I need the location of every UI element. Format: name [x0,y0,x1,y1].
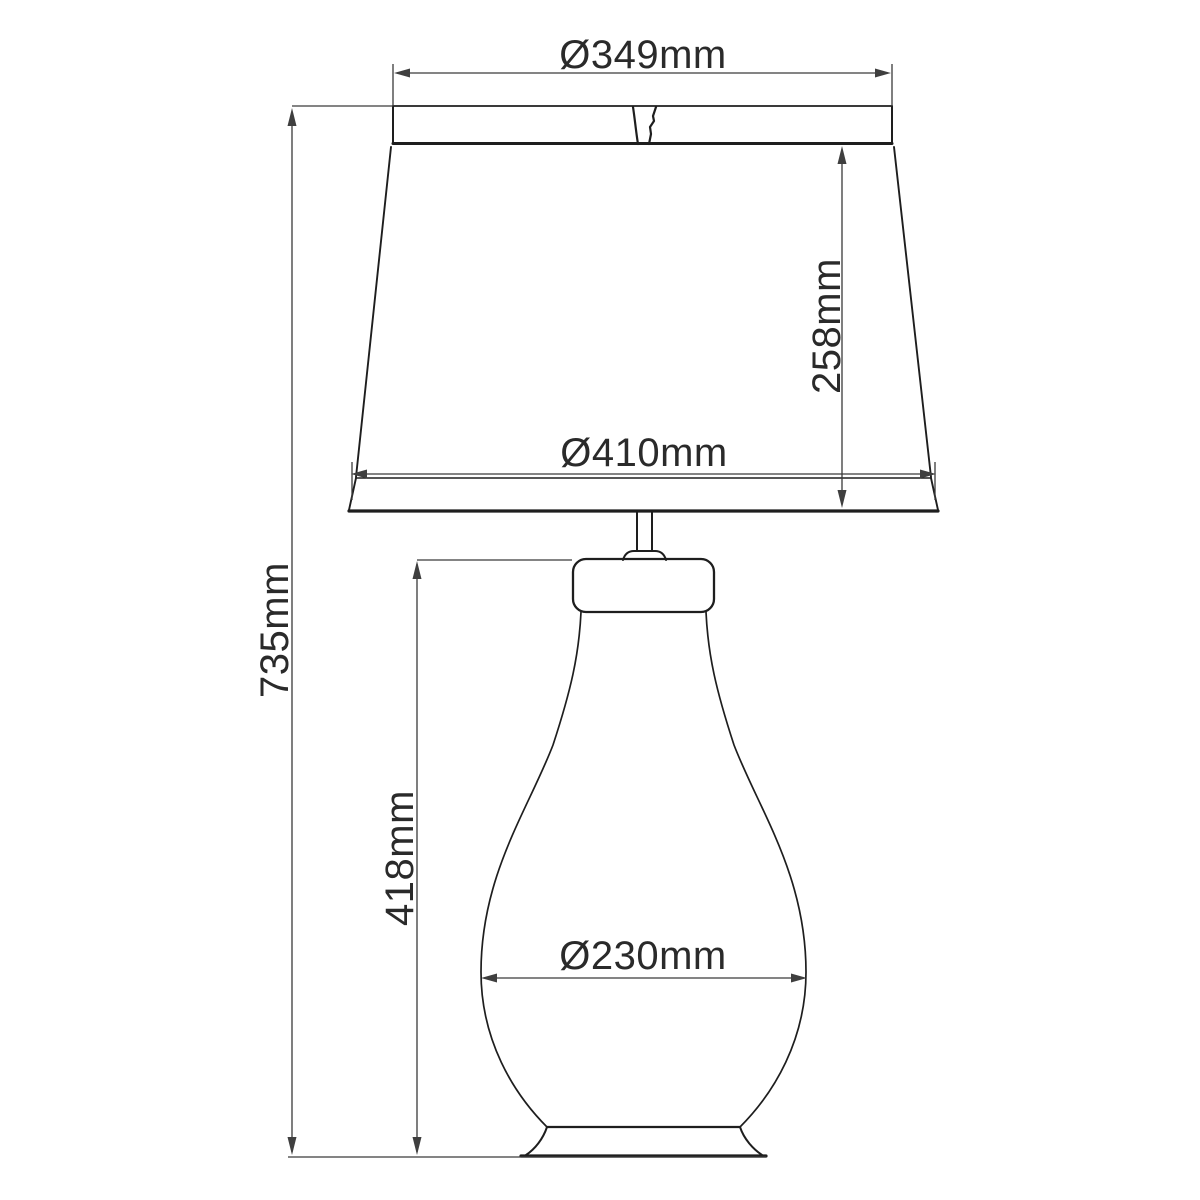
dim-label-shade-height: 258mm [805,258,849,394]
arrow-down-icon [838,490,847,508]
dim-label-body-diameter: Ø230mm [559,934,727,978]
dimension-shade-top-diameter: Ø349mm [393,33,892,106]
lamp-dimension-diagram: Ø349mm 258mm Ø410mm 735mm [0,0,1200,1200]
dim-label-shade-top-diameter: Ø349mm [559,33,727,77]
diagram-svg: Ø349mm 258mm Ø410mm 735mm [0,0,1200,1200]
arrow-right-icon [791,974,807,983]
dimension-body-diameter: Ø230mm [481,934,807,983]
body-outline-right [706,612,806,1127]
finial [633,107,656,144]
dimension-body-height: 418mm [378,560,572,1155]
dim-label-body-height: 418mm [378,790,422,926]
arrow-down-icon [288,1137,297,1155]
arrow-right-icon [920,470,936,479]
dimension-shade-bottom-diameter: Ø410mm [351,431,936,500]
dimension-total-height: 735mm [253,106,393,1155]
base [521,1127,766,1156]
lamp-body [288,512,806,1157]
shade-top-ring [393,106,892,144]
arrow-left-icon [481,974,497,983]
arrow-up-icon [838,146,847,164]
arrow-down-icon [413,1137,422,1155]
dim-label-total-height: 735mm [253,562,297,698]
arrow-up-icon [413,561,422,579]
arrow-right-icon [875,69,891,78]
dimension-shade-height: 258mm [805,146,849,508]
arrow-left-icon [394,69,410,78]
arrow-left-icon [351,470,367,479]
dim-label-shade-bottom-diameter: Ø410mm [560,431,728,475]
body-outline-left [481,612,581,1127]
neck-cap [573,559,714,612]
arrow-up-icon [288,108,297,126]
shade-bottom-rim [349,478,938,511]
stem [637,512,652,551]
